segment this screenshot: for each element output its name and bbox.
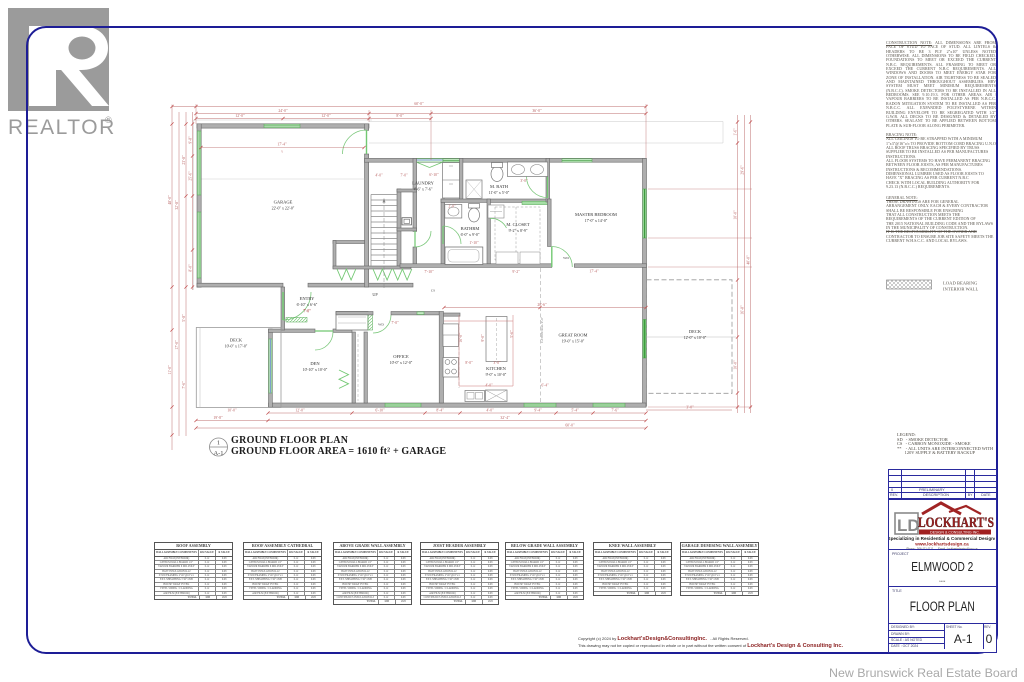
svg-text:6'-0" x 9'-0": 6'-0" x 9'-0" (461, 233, 480, 237)
svg-text:A-1: A-1 (213, 450, 223, 457)
svg-text:29'-6": 29'-6" (741, 165, 745, 175)
svg-text:7'-0": 7'-0" (400, 174, 408, 178)
svg-text:3'-0": 3'-0" (520, 179, 528, 183)
svg-text:GREAT ROOM: GREAT ROOM (558, 333, 587, 338)
svg-text:12'-0": 12'-0" (235, 114, 245, 118)
svg-text:9'-2": 9'-2" (512, 270, 520, 274)
svg-text:1'-6": 1'-6" (734, 128, 738, 136)
svg-text:1'-10": 1'-10" (469, 241, 479, 245)
svg-text:8'-0": 8'-0" (465, 361, 473, 365)
svg-text:OFFICE: OFFICE (393, 354, 409, 359)
svg-text:10'-0": 10'-0" (734, 360, 738, 370)
svg-text:10'-0": 10'-0" (227, 409, 237, 413)
svg-text:WD: WD (563, 256, 569, 260)
svg-text:3'-0": 3'-0" (493, 361, 501, 365)
svg-text:WD: WD (378, 323, 384, 327)
svg-text:12'-0": 12'-0" (295, 409, 305, 413)
svg-text:8'-0": 8'-0" (396, 114, 404, 118)
svg-text:16'-0": 16'-0" (459, 333, 463, 343)
svg-text:10'-0" x 17'-0": 10'-0" x 17'-0" (225, 344, 248, 348)
svg-text:LOCKHART'S: LOCKHART'S (918, 515, 994, 531)
svg-text:40'-0": 40'-0" (747, 255, 751, 265)
svg-text:4'-0": 4'-0" (486, 409, 494, 413)
svg-text:10'-0" x 12'-0": 10'-0" x 12'-0" (390, 361, 413, 365)
svg-text:32'-4": 32'-4" (500, 416, 510, 420)
svg-text:5'-8": 5'-8" (182, 314, 186, 322)
svg-text:24'-0": 24'-0" (278, 109, 288, 113)
svg-text:M. CLOSET: M. CLOSET (506, 222, 530, 227)
svg-text:8'-4": 8'-4" (436, 409, 444, 413)
svg-text:KITCHEN: KITCHEN (486, 366, 506, 371)
svg-text:9'-0": 9'-0" (481, 334, 485, 342)
svg-text:10'-10" x 10'-0": 10'-10" x 10'-0" (303, 368, 328, 372)
svg-text:MASTER BEDROOM: MASTER BEDROOM (575, 212, 617, 217)
svg-text:11'-0": 11'-0" (168, 365, 172, 375)
svg-text:1: 1 (217, 440, 220, 447)
svg-text:16'-8": 16'-8" (741, 305, 745, 315)
svg-text:48'-0": 48'-0" (168, 195, 172, 205)
svg-text:7'-10": 7'-10" (424, 270, 434, 274)
svg-text:½: ½ (281, 150, 283, 153)
svg-text:25'-6": 25'-6" (189, 171, 193, 181)
svg-text:17'-0": 17'-0" (175, 340, 179, 350)
svg-text:LD: LD (897, 516, 920, 535)
svg-text:6'-10": 6'-10" (429, 173, 439, 177)
svg-text:DECK: DECK (689, 329, 702, 334)
svg-text:8'-0": 8'-0" (189, 264, 193, 272)
svg-text:5'-4": 5'-4" (571, 409, 579, 413)
svg-text:6'-10" x 6'-6": 6'-10" x 6'-6" (297, 303, 318, 307)
svg-text:17'-4": 17'-4" (277, 143, 287, 147)
svg-text:CATHEDRAL 9'-0": CATHEDRAL 9'-0" (540, 316, 544, 342)
svg-text:M. BATH: M. BATH (490, 184, 509, 189)
svg-text:9'-8": 9'-8" (189, 136, 193, 144)
svg-text:4'-0": 4'-0" (375, 174, 383, 178)
svg-text:12'-0": 12'-0" (321, 114, 331, 118)
svg-text:23'-8": 23'-8" (182, 155, 186, 165)
svg-text:6'-4": 6'-4" (541, 384, 549, 388)
svg-text:DEN: DEN (310, 361, 320, 366)
svg-text:7'-6": 7'-6" (182, 381, 186, 389)
svg-text:19'-8": 19'-8" (213, 416, 223, 420)
svg-text:ENTRY: ENTRY (300, 296, 316, 301)
svg-text:5'-6": 5'-6" (510, 330, 514, 338)
svg-text:2'-0": 2'-0" (448, 205, 456, 209)
svg-text:60'-0": 60'-0" (565, 424, 575, 428)
svg-text:DECK: DECK (230, 338, 243, 343)
svg-text:GARAGE: GARAGE (274, 200, 293, 205)
svg-text:60'-0": 60'-0" (414, 102, 424, 106)
svg-text:9'-2" x 8'-9": 9'-2" x 8'-9" (509, 229, 528, 233)
svg-text:7'-0": 7'-0" (303, 309, 311, 313)
svg-text:10'-0": 10'-0" (734, 210, 738, 220)
svg-text:BATHRM: BATHRM (461, 226, 480, 231)
svg-text:4'-6" x 7'-6": 4'-6" x 7'-6" (414, 187, 433, 191)
svg-text:9'-0" x 10'-0": 9'-0" x 10'-0" (486, 373, 507, 377)
svg-text:CS: CS (431, 289, 435, 293)
svg-text:DESIGN & CONSULTING INC.: DESIGN & CONSULTING INC. (930, 531, 980, 535)
svg-text:32'-8": 32'-8" (175, 200, 179, 210)
svg-text:19'-0" x 15'-0": 19'-0" x 15'-0" (562, 339, 585, 343)
svg-text:20'-6": 20'-6" (537, 303, 547, 307)
svg-text:7'-6": 7'-6" (611, 409, 619, 413)
svg-text:17'-0" x 14'-0": 17'-0" x 14'-0" (585, 219, 608, 223)
svg-text:11'-0" x 5'-0": 11'-0" x 5'-0" (489, 191, 510, 195)
svg-text:12'-0" x 10'-0": 12'-0" x 10'-0" (684, 336, 707, 340)
svg-text:17'-4": 17'-4" (589, 270, 599, 274)
svg-text:36'-0": 36'-0" (532, 109, 542, 113)
svg-text:7'-0": 7'-0" (391, 321, 399, 325)
svg-text:Specializing in Residential &: Specializing in Residential & Commercial… (889, 536, 995, 541)
svg-text:6'-10": 6'-10" (375, 409, 385, 413)
svg-text:3'-0": 3'-0" (686, 406, 694, 410)
svg-text:4'-0": 4'-0" (485, 384, 493, 388)
svg-text:UP: UP (372, 292, 378, 297)
svg-text:LAUNDRY: LAUNDRY (412, 181, 435, 186)
svg-text:9'-4": 9'-4" (534, 409, 542, 413)
svg-text:22'-0" x 22'-0": 22'-0" x 22'-0" (272, 206, 295, 210)
